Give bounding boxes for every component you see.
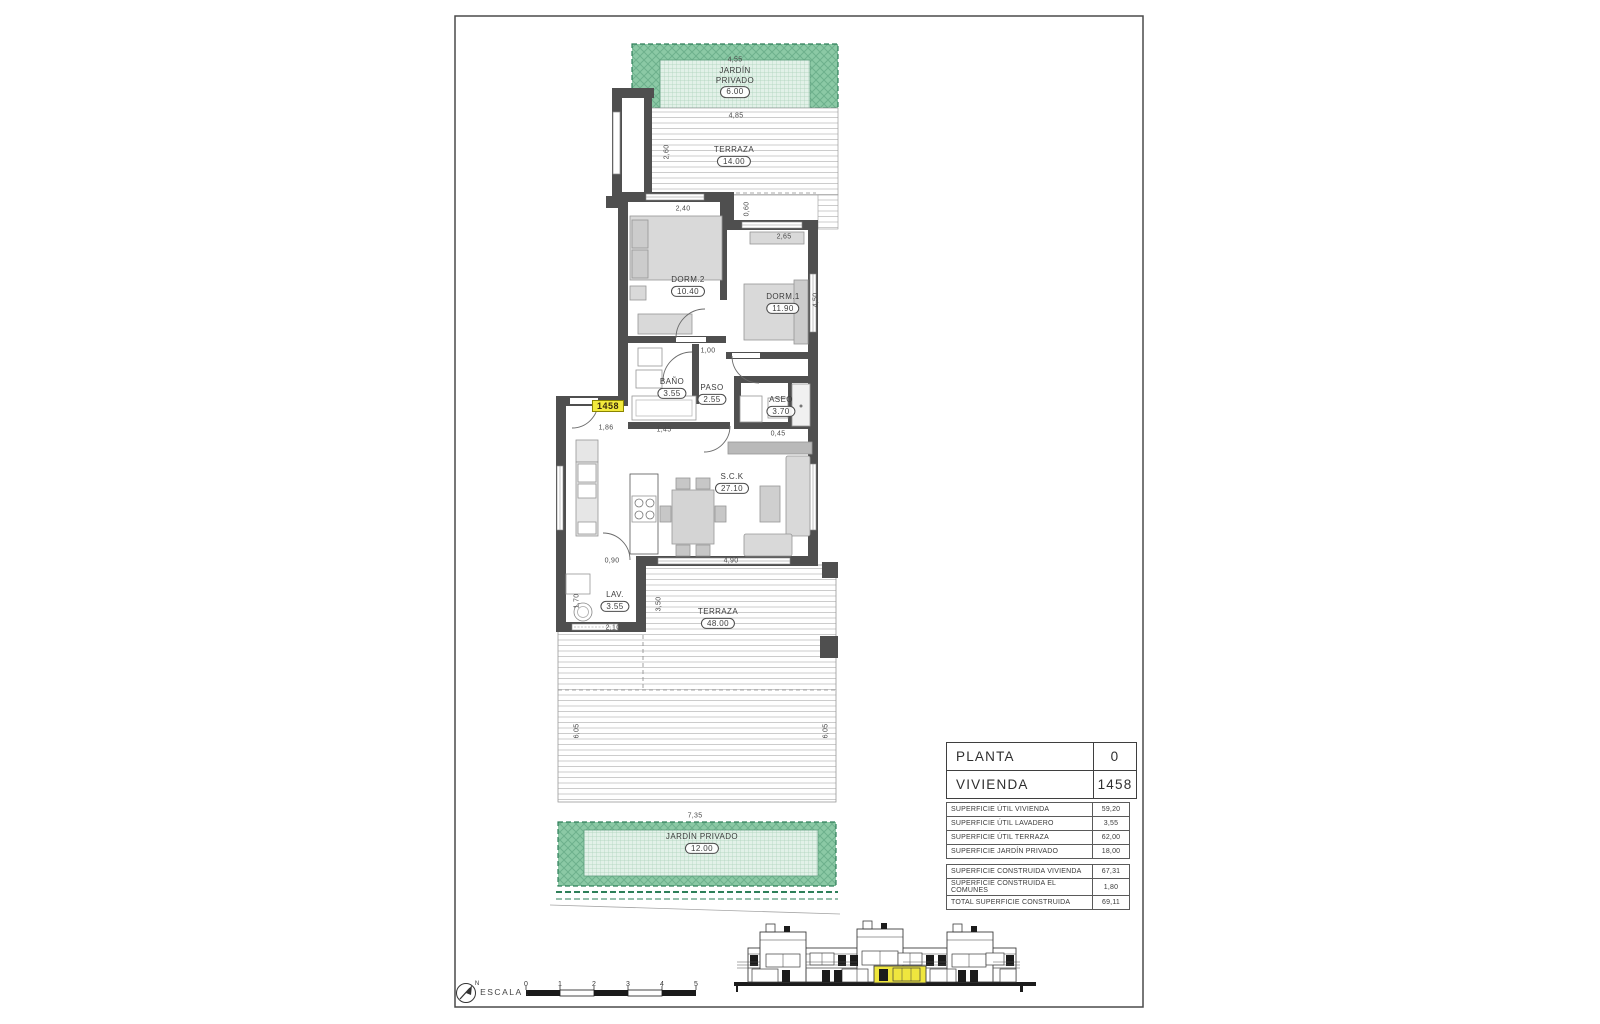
room-area: 3.55 [657, 388, 686, 400]
dimension-label: 4,90 [724, 558, 739, 565]
table-row: PLANTA 0 [947, 743, 1137, 771]
room-label-terrace-bottom: TERRAZA 48.00 [698, 607, 738, 629]
dimension-label: 3,50 [656, 597, 663, 612]
scale-tick: 2 [592, 981, 596, 988]
room-label-garden-bottom: JARDÍN PRIVADO 12.00 [666, 832, 738, 854]
room-name: BAÑO [657, 377, 686, 387]
dimension-label: 0,60 [744, 202, 751, 217]
room-name: LAV. [600, 590, 629, 600]
dimension-label: 2,10 [606, 625, 621, 632]
title-block-table: PLANTA 0 VIVIENDA 1458 [946, 742, 1137, 799]
scale-tick: 4 [660, 981, 664, 988]
dimension-label: 1,86 [599, 425, 614, 432]
surface-label: SUPERFICIE ÚTIL VIVIENDA [947, 803, 1093, 817]
dimension-label: 0,45 [771, 431, 786, 438]
surface-table: SUPERFICIE ÚTIL VIVIENDA 59,20 SUPERFICI… [946, 802, 1130, 859]
room-area: 14.00 [717, 156, 751, 168]
table-row: SUPERFICIE ÚTIL TERRAZA 62,00 [947, 831, 1130, 845]
dimension-label: 4,85 [729, 113, 744, 120]
planta-label: PLANTA [947, 743, 1094, 771]
scale-tick: 3 [626, 981, 630, 988]
room-label-lav: LAV. 3.55 [600, 590, 629, 612]
room-label-dorm1: DORM.1 11.90 [766, 292, 800, 314]
table-row: SUPERFICIE JARDÍN PRIVADO 18,00 [947, 845, 1130, 859]
room-area: 48.00 [701, 618, 735, 630]
room-name: DORM.2 [671, 275, 705, 285]
dimension-label: 1,00 [701, 348, 716, 355]
room-area: 2.55 [697, 394, 726, 406]
room-label-aseo: ASEO 3.70 [766, 395, 795, 417]
room-area: 6.00 [720, 86, 749, 98]
room-area: 12.00 [685, 843, 719, 855]
room-area: 10.40 [671, 286, 705, 298]
dimension-label: 0,90 [605, 558, 620, 565]
room-name: S.C.K [715, 472, 749, 482]
table-row: SUPERFICIE CONSTRUIDA EL COMUNES 1,80 [947, 879, 1130, 896]
floor-plan-drawing [0, 0, 1600, 1024]
dimension-label: 7,35 [688, 813, 703, 820]
room-label-paso: PASO 2.55 [697, 383, 726, 405]
room-label-terrace-top: TERRAZA 14.00 [714, 145, 754, 167]
north-compass-icon [457, 984, 476, 1003]
blueprint-page: JARDÍN PRIVADO 6.00 TERRAZA 14.00 DORM.2… [0, 0, 1600, 1024]
surface-label: SUPERFICIE JARDÍN PRIVADO [947, 845, 1093, 859]
dimension-label: 1,70 [574, 594, 581, 609]
scale-tick: 0 [524, 981, 528, 988]
vivienda-value: 1458 [1094, 771, 1137, 799]
surface-label: SUPERFICIE CONSTRUIDA EL COMUNES [947, 879, 1093, 896]
north-label: N [475, 981, 479, 987]
dimension-label: 6,05 [574, 724, 581, 739]
room-label-sck: S.C.K 27.10 [715, 472, 749, 494]
surface-value: 62,00 [1093, 831, 1130, 845]
table-row: VIVIENDA 1458 [947, 771, 1137, 799]
room-name: TERRAZA [698, 607, 738, 617]
room-label-bano: BAÑO 3.55 [657, 377, 686, 399]
scale-tick: 1 [558, 981, 562, 988]
dimension-label: 6,05 [823, 724, 830, 739]
surface-value: 18,00 [1093, 845, 1130, 859]
room-label-garden-top: JARDÍN PRIVADO 6.00 [709, 66, 761, 98]
dimension-label: 1,45 [657, 427, 672, 434]
room-name: DORM.1 [766, 292, 800, 302]
surface-value: 67,31 [1093, 865, 1130, 879]
surface-value: 3,55 [1093, 817, 1130, 831]
room-name: PASO [697, 383, 726, 393]
surface-value: 59,20 [1093, 803, 1130, 817]
surface-label: SUPERFICIE CONSTRUIDA VIVIENDA [947, 865, 1093, 879]
dimension-label: 4,50 [813, 293, 820, 308]
vivienda-label: VIVIENDA [947, 771, 1094, 799]
scale-label: ESCALA : [480, 987, 530, 997]
room-label-dorm2: DORM.2 10.40 [671, 275, 705, 297]
room-area: 3.70 [766, 406, 795, 418]
table-row: SUPERFICIE CONSTRUIDA VIVIENDA 67,31 [947, 865, 1130, 879]
table-row: SUPERFICIE ÚTIL LAVADERO 3,55 [947, 817, 1130, 831]
table-row: SUPERFICIE ÚTIL VIVIENDA 59,20 [947, 803, 1130, 817]
room-name: ASEO [766, 395, 795, 405]
entry-corridor-walls [606, 88, 654, 208]
table-row: TOTAL SUPERFICIE CONSTRUIDA 69,11 [947, 896, 1130, 910]
scale-tick: 5 [694, 981, 698, 988]
dimension-label: 2,65 [777, 234, 792, 241]
built-surface-table: SUPERFICIE CONSTRUIDA VIVIENDA 67,31 SUP… [946, 864, 1130, 910]
room-area: 11.90 [766, 303, 799, 315]
surface-label: SUPERFICIE ÚTIL LAVADERO [947, 817, 1093, 831]
room-name: JARDÍN PRIVADO [709, 66, 761, 85]
dimension-label: 2,60 [664, 145, 671, 160]
surface-label: TOTAL SUPERFICIE CONSTRUIDA [947, 896, 1093, 910]
room-area: 3.55 [600, 601, 629, 613]
surface-value: 69,11 [1093, 896, 1130, 910]
planta-value: 0 [1094, 743, 1137, 771]
dimension-label: 2,40 [676, 206, 691, 213]
room-name: JARDÍN PRIVADO [666, 832, 738, 842]
highlighted-unit [874, 966, 926, 983]
surface-value: 1,80 [1093, 879, 1130, 896]
surface-label: SUPERFICIE ÚTIL TERRAZA [947, 831, 1093, 845]
room-area: 27.10 [715, 483, 749, 495]
unit-number-tag: 1458 [592, 400, 624, 412]
scale-bar [526, 986, 696, 996]
elevation-drawing [734, 921, 1036, 992]
room-name: TERRAZA [714, 145, 754, 155]
dimension-label: 4,55 [728, 57, 743, 64]
